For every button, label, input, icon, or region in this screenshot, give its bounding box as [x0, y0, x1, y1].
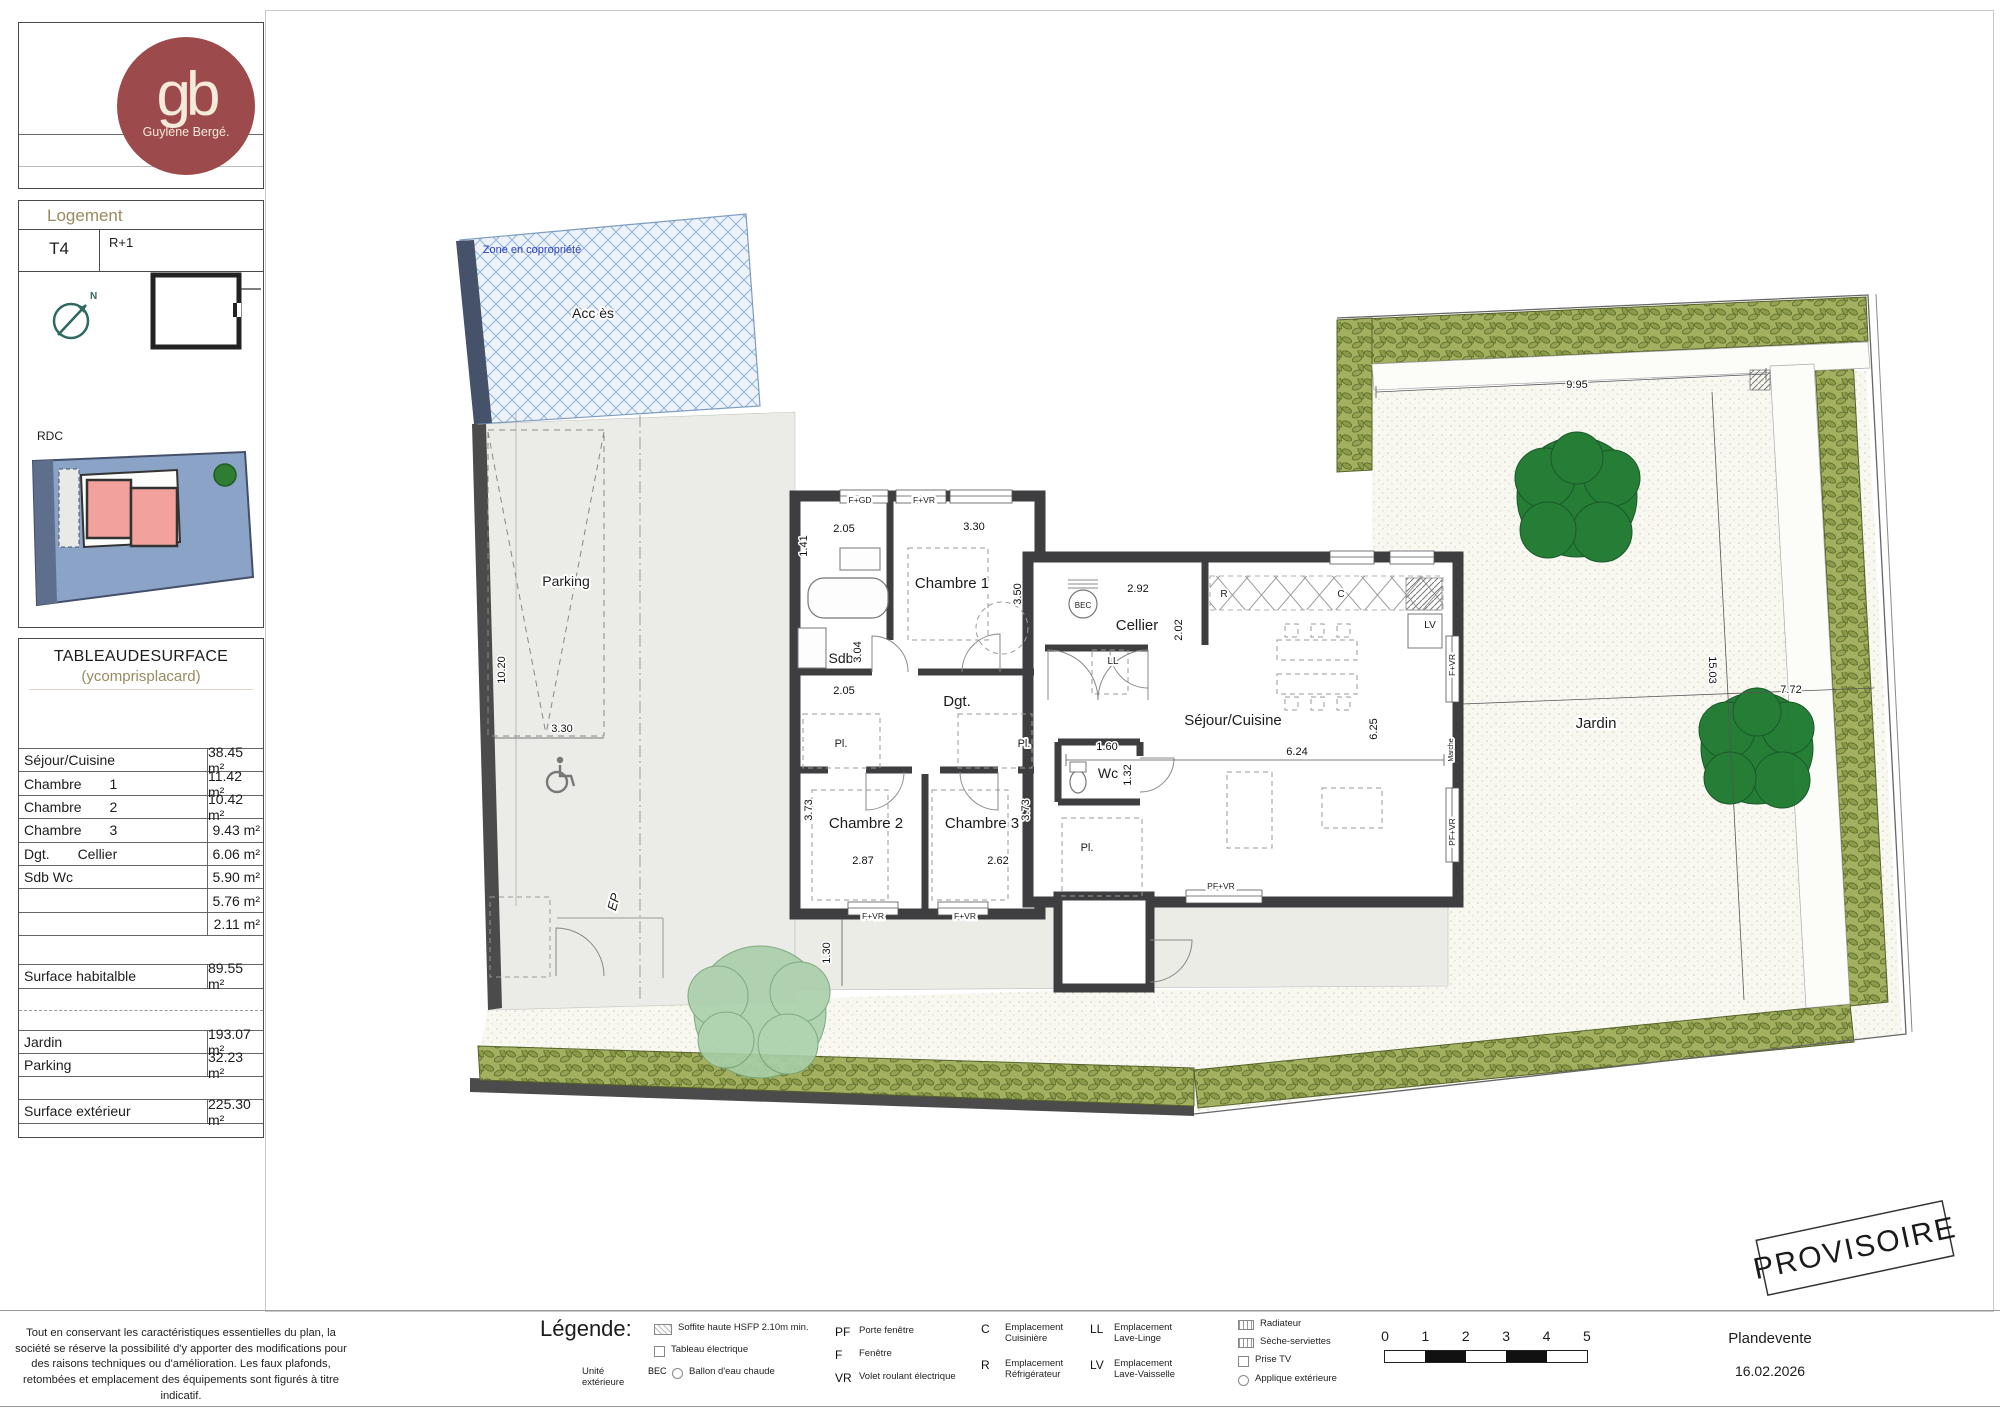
footer-divider	[0, 1310, 2000, 1311]
legend-item: Emplacement Lave-Vaisselle	[1114, 1358, 1192, 1380]
closet-label: Pl.	[1018, 738, 1031, 750]
row-label: Dgt. Cellier	[19, 846, 207, 862]
window-label: F+VR	[862, 911, 884, 921]
logo-box: gb Guylène Bergé.	[18, 22, 264, 189]
soffit-swatch-icon	[654, 1324, 672, 1335]
scale-tick: 4	[1541, 1328, 1553, 1344]
row-value: 10.42 m²	[207, 796, 263, 818]
window-label: F+VR	[1447, 654, 1457, 676]
legend-item: Tableau électrique	[671, 1344, 748, 1355]
room-label-sejour-cuisine: Séjour/Cuisine	[1184, 712, 1282, 729]
row-label: Surface habitalble	[19, 968, 207, 984]
dim-label: 2.87	[852, 855, 873, 867]
table-row: Dgt. Cellier 6.06 m²	[19, 842, 263, 865]
area-label-acces: Acc ès	[572, 305, 614, 321]
area-label-jardin: Jardin	[1576, 715, 1617, 732]
marche-label: Marche	[1448, 738, 1455, 761]
legend-item: Ballon d'eau chaude	[689, 1366, 775, 1377]
room-label-dgt: Dgt.	[943, 693, 971, 710]
floor-label: R+1	[109, 235, 133, 250]
tree	[1515, 432, 1640, 562]
dim-label: 1.30	[821, 942, 833, 963]
dim-label: 3.30	[963, 521, 984, 533]
dim-label: 3.73	[803, 799, 815, 820]
dashed-divider	[19, 989, 263, 1030]
legend-item: Radiateur	[1260, 1318, 1301, 1329]
row-value: 2.11 m²	[207, 913, 263, 935]
mini-rdc-site-plan	[27, 447, 263, 623]
window-label: PF+VR	[1207, 881, 1235, 891]
dim-label: 3.50	[1012, 583, 1024, 604]
table-row: Parking 32.23 m²	[19, 1053, 263, 1076]
legend-col-misc: Soffite haute HSFP 2.10m min. Tableau él…	[582, 1322, 809, 1397]
zone-copropriete-label: Zone en copropriété	[483, 244, 581, 256]
dim-label: 9.95	[1566, 379, 1587, 391]
north-compass-icon: N	[44, 283, 102, 349]
legend-item: Emplacement Réfrigérateur	[1005, 1358, 1083, 1380]
row-value: 5.90 m²	[207, 866, 263, 888]
dim-label: 2.02	[1173, 619, 1185, 640]
surface-table-rows: Séjour/Cuisine 38.45 m² Chambre 1 11.42 …	[19, 748, 263, 1124]
washbasin	[798, 628, 826, 668]
bathtub	[808, 578, 888, 618]
disclaimer-text: Tout en conservant les caractéristiques …	[15, 1326, 347, 1404]
agency-logo: gb Guylène Bergé.	[117, 37, 255, 175]
document-date: 16.02.2026	[1690, 1363, 1850, 1379]
vanity	[840, 548, 880, 570]
table-row: 2.11 m²	[19, 912, 263, 935]
dim-label: 1.32	[1122, 764, 1134, 785]
dim-label: 2.05	[833, 523, 854, 535]
dim-label: 2.62	[987, 855, 1008, 867]
window-label: F+VR	[954, 911, 976, 921]
window-label: F+GD	[849, 495, 872, 505]
closet-label: Pl.	[1081, 842, 1094, 854]
row-value: 6.06 m²	[207, 843, 263, 865]
legend-item: Porte fenêtre	[859, 1325, 914, 1336]
row-label: Parking	[19, 1057, 207, 1073]
row-value: 225.30 m²	[207, 1100, 263, 1122]
dim-label: 15.03	[1706, 656, 1718, 684]
room-label-chambre-3: Chambre 3	[945, 815, 1019, 832]
document-title: Plandevente	[1690, 1330, 1850, 1347]
row-label: Sdb Wc	[19, 869, 207, 885]
table-row: Chambre 2 10.42 m²	[19, 795, 263, 818]
room-label-chambre-2: Chambre 2	[829, 815, 903, 832]
mini-r1-plan	[149, 269, 263, 355]
row-value: 9.43 m²	[207, 819, 263, 841]
tv-socket-icon	[1238, 1356, 1249, 1367]
row-label: Chambre 3	[19, 822, 207, 838]
scale-tick: 5	[1581, 1328, 1593, 1344]
legend-col-laundry: LL Emplacement Lave-Linge LV Emplacement…	[1090, 1322, 1192, 1389]
legend-abbr: PF	[835, 1325, 859, 1339]
closet-label: Pl.	[835, 738, 848, 750]
table-row-exterior-total: Surface extérieur 225.30 m²	[19, 1099, 263, 1122]
dim-label: 3.73	[1020, 799, 1032, 820]
legend-abbr: C	[981, 1322, 1005, 1336]
row-value: 89.55 m²	[207, 965, 263, 987]
row-label: Jardin	[19, 1034, 207, 1050]
scale-bar: 0 1 2 3 4 5	[1384, 1328, 1588, 1363]
provisoire-stamp: PROVISOIRE	[1748, 1199, 1962, 1297]
apartment-type: T4	[19, 239, 99, 259]
north-letter: N	[90, 291, 97, 302]
window-label: F+VR	[913, 495, 935, 505]
table-row: Sdb Wc 5.90 m²	[19, 865, 263, 888]
water-heater-icon	[672, 1368, 683, 1379]
divider	[19, 166, 263, 167]
table-row: Chambre 3 9.43 m²	[19, 818, 263, 841]
area-label-parking: Parking	[542, 573, 589, 589]
appliance-label-c: C	[1337, 589, 1344, 600]
legend-item: Sèche-serviettes	[1260, 1336, 1331, 1347]
scale-tick: 0	[1379, 1328, 1391, 1344]
row-value: 32.23 m²	[207, 1054, 263, 1076]
dim-label: 1.41	[798, 535, 810, 556]
logo-brand-name: Guylène Bergé.	[143, 125, 230, 139]
kitchen-corner-unit	[1406, 578, 1442, 610]
legend-item: Volet roulant électrique	[859, 1371, 956, 1382]
legend-abbr: LL	[1090, 1322, 1114, 1336]
surface-table-title: TABLEAUDESURFACE	[19, 648, 263, 666]
surface-table-subtitle: (ycomprisplacard)	[19, 668, 263, 685]
gate-mark	[1750, 370, 1770, 390]
legend-abbr: VR	[835, 1371, 859, 1385]
radiator-icon	[1238, 1320, 1254, 1330]
legend-item: Emplacement Lave-Linge	[1114, 1322, 1192, 1344]
dim-label: 10.20	[496, 656, 508, 684]
row-label: Surface extérieur	[19, 1103, 207, 1119]
legend-item: Fenêtre	[859, 1348, 892, 1359]
legend-item: Prise TV	[1255, 1354, 1291, 1365]
logement-box: Logement T4 R+1 N RDC	[18, 200, 264, 628]
legend-abbr: R	[981, 1358, 1005, 1372]
wall-light-icon	[1238, 1375, 1249, 1386]
divider	[99, 229, 100, 271]
rdc-label: RDC	[37, 429, 63, 443]
dim-label: 3.04	[852, 641, 864, 662]
legend-item: Soffite haute HSFP 2.10m min.	[678, 1322, 809, 1333]
plan-page: gb Guylène Bergé. Logement T4 R+1 N RDC	[0, 0, 2000, 1414]
dim-label: 7.72	[1780, 684, 1801, 696]
legend-abbr: F	[835, 1348, 859, 1362]
row-label: Séjour/Cuisine	[19, 752, 207, 768]
surface-table-box: TABLEAUDESURFACE (ycomprisplacard) Séjou…	[18, 638, 264, 1138]
room-label-cellier: Cellier	[1116, 617, 1159, 634]
legend-item: Emplacement Cuisinière	[1005, 1322, 1083, 1344]
logement-title: Logement	[47, 206, 123, 226]
room-label-sdb: Sdb	[829, 650, 854, 666]
dim-label: 2.92	[1127, 583, 1148, 595]
appliance-label-lv: LV	[1424, 620, 1436, 631]
legend-abbr: LV	[1090, 1358, 1114, 1372]
scale-tick: 3	[1500, 1328, 1512, 1344]
row-label: Chambre 2	[19, 799, 207, 815]
appliance-label-r: R	[1220, 589, 1227, 600]
dim-label: 2.05	[833, 685, 854, 697]
scale-segments	[1384, 1350, 1588, 1363]
toilet-tank	[1070, 762, 1086, 772]
hedge-west-stub	[1337, 318, 1372, 472]
page-bottom-divider	[0, 1406, 2000, 1407]
legend-item: Applique extérieure	[1255, 1373, 1337, 1384]
dim-label: 3.30	[551, 723, 572, 735]
legend-abbr: BEC	[648, 1366, 672, 1376]
dim-label: 6.25	[1368, 718, 1380, 739]
scale-tick: 2	[1460, 1328, 1472, 1344]
legend-col-electric: Radiateur Sèche-serviettes Prise TV Appl…	[1238, 1318, 1337, 1395]
table-row-habitable: Surface habitalble 89.55 m²	[19, 964, 263, 987]
toilet	[1070, 771, 1086, 793]
bedroom-wing-walls	[795, 496, 1040, 914]
scale-tick: 1	[1419, 1328, 1431, 1344]
logo-monogram: gb	[157, 67, 216, 123]
appliance-label-ll: LL	[1107, 656, 1119, 667]
dim-label: 1.60	[1096, 741, 1117, 753]
table-row: 5.76 m²	[19, 888, 263, 911]
legend-col-kitchen: C Emplacement Cuisinière R Emplacement R…	[981, 1322, 1083, 1389]
room-label-chambre-1: Chambre 1	[915, 575, 989, 592]
floor-plan-drawing: PROVISOIRE Chambre 1Chambre 2Chambre 3Sd…	[265, 10, 1995, 1310]
legend-col-windows: PF Porte fenêtre F Fenêtre VR Volet roul…	[835, 1325, 956, 1394]
row-label: Chambre 1	[19, 776, 207, 792]
room-label-wc: Wc	[1098, 765, 1118, 781]
tree	[1699, 688, 1814, 808]
divider	[29, 689, 253, 690]
dim-label: 6.24	[1286, 746, 1307, 758]
legend-item: Unité extérieure	[582, 1366, 648, 1388]
window-label: PF+VR	[1447, 818, 1457, 846]
yard-ground	[478, 412, 795, 1010]
divider	[19, 229, 263, 230]
title-block: Plandevente 16.02.2026	[1690, 1330, 1850, 1379]
electrical-panel-icon	[654, 1346, 665, 1357]
scale-numbers: 0 1 2 3 4 5	[1379, 1328, 1593, 1344]
towel-dryer-icon	[1238, 1338, 1254, 1348]
appliance-label-bec: BEC	[1075, 601, 1092, 610]
entry-extension-walls	[1058, 896, 1150, 988]
row-value: 5.76 m²	[207, 889, 263, 911]
